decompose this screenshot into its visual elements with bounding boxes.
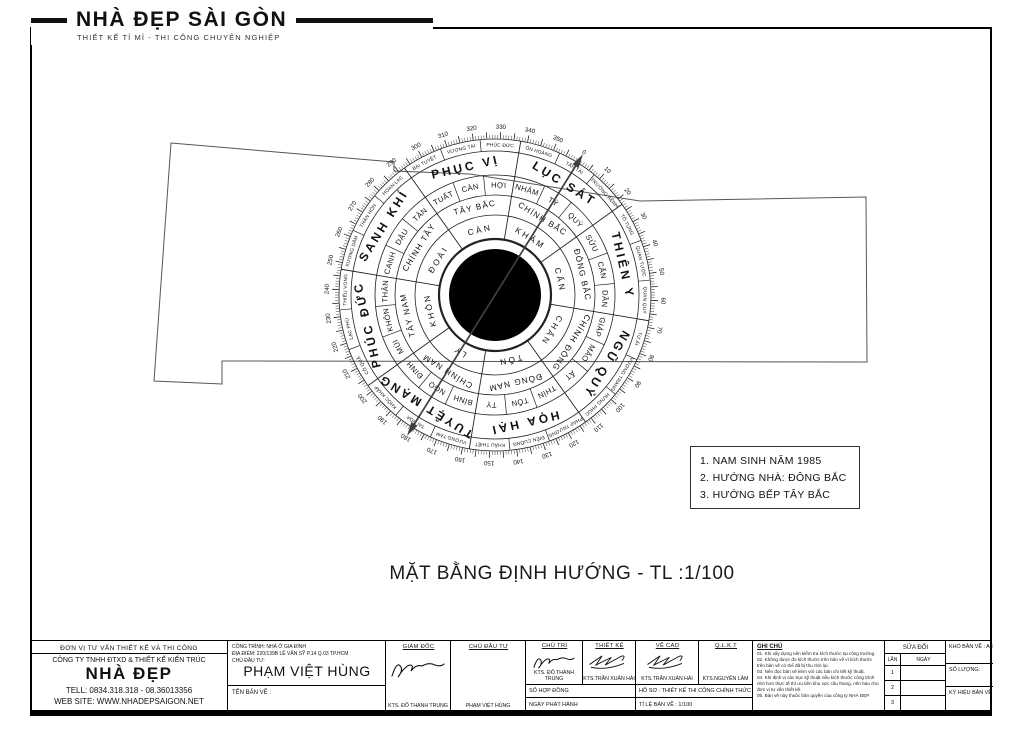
company-website: WEB SITE: WWW.NHADEPSAIGON.NET [31,697,227,706]
sign-name: KTS.TRẦN XUÂN HẢI [583,676,635,682]
sign-name: KTS. ĐỖ THÀNH TRUNG [386,703,450,709]
note-line: 2. HƯỚNG NHÀ: ĐÔNG BẮC [700,470,859,487]
sign-role: CHỦ ĐẦU TƯ [469,644,508,650]
signature-image [389,656,447,682]
revision-col-lan: LẦN [885,654,901,666]
revision-cell: SỬA ĐỔI LẦN NGÀY 1 2 3 [884,641,945,711]
scale-cell: TỈ LỆ BẢN VẼ : 1/100 [635,697,752,711]
note: 05. Bản vẽ này thuộc bản quyền của công … [757,693,880,699]
dossier-cell: HỒ SƠ : THIẾT KẾ THI CÔNG CHÍNH THỨC [635,684,752,697]
company-header: ĐƠN VỊ TƯ VẤN THIẾT KẾ VÀ THI CÔNG [31,641,227,654]
contract-number-cell: SỐ HỢP ĐỒNG [525,684,635,697]
company-line1: CÔNG TY TNHH ĐTXD & THIẾT KẾ KIẾN TRÚC [31,657,227,664]
sign-cell-thiet-ke: THIẾT KẾ KTS.TRẦN XUÂN HẢI [582,641,635,684]
drawing-sheet: KHẢMCẤNCHẤNTỐNLYKHÔNĐOÀICÀNCHÍNH BẮCĐÔNG… [0,0,1024,734]
sign-role: VẼ CAD [656,643,679,649]
copies: SỐ LƯỢNG: [946,664,993,687]
signature-image [642,652,692,672]
note-line: 1. NAM SINH NĂM 1985 [700,453,859,470]
drawing-title: MẶT BẰNG ĐỊNH HƯỚNG - TL :1/100 [262,563,862,585]
sign-name: KTS. ĐỖ THÀNH TRUNG [526,670,582,682]
note: 03. Nên đọc bản vẽ kèm với các bản chi t… [757,669,880,675]
logo-bar-right [296,18,433,23]
sign-cell-chu-dau-tu: CHỦ ĐẦU TƯ PHẠM VIỆT HÙNG [450,641,525,711]
sheet-info-cell: KHỔ BẢN VẼ : A3 SỐ LƯỢNG: KÝ HIỆU BẢN VẼ [945,641,992,711]
sign-role: CHỦ TRÌ [542,643,568,649]
titleblock-bottom-bar [31,710,992,716]
revision-number: 1 [885,666,901,681]
titleblock-company-cell: ĐƠN VỊ TƯ VẤN THIẾT KẾ VÀ THI CÔNG CÔNG … [31,641,227,711]
project-name: CÔNG TRÌNH: NHÀ Ở GIA ĐÌNH [232,644,384,650]
note: 02. Không được đo kích thước trên bản vẽ… [757,657,880,669]
revision-col-ngay: NGÀY [901,654,946,666]
company-tel: TELL: 0834.318.318 - 08.36013356 [31,686,227,695]
title-block: ĐƠN VỊ TƯ VẤN THIẾT KẾ VÀ THI CÔNG CÔNG … [31,640,992,710]
sign-role: Q.L.K.T [715,643,737,649]
paper-size: KHỔ BẢN VẼ : A3 [946,641,993,664]
sign-name: KTS.TRẦN XUÂN HẢI [636,676,698,682]
sheet-border [30,27,992,716]
logo-bar-left [31,18,67,23]
sign-cell-ve-cad: VẼ CAD KTS.TRẦN XUÂN HẢI [635,641,698,684]
titleblock-project-cell: CÔNG TRÌNH: NHÀ Ở GIA ĐÌNH ĐỊA ĐIỂM: 220… [227,641,385,711]
project-address: ĐỊA ĐIỂM: 220/139B LÊ VĂN SỸ P.14 Q.03 T… [232,651,384,657]
sign-role: THIẾT KẾ [595,643,623,649]
divider [228,685,386,686]
company-name: NHÀ ĐẸP [31,664,227,684]
issue-date-cell: NGÀY PHÁT HÀNH [525,697,635,711]
owner-name: PHẠM VIỆT HÙNG [228,663,386,679]
revision-number: 3 [885,696,901,711]
sheet-code: KÝ HIỆU BẢN VẼ [946,687,993,711]
notes-cell: GHI CHÚ 01. Khi xây dựng nên kiểm tra kí… [752,641,884,711]
company-logo: NHÀ ĐẸP SÀI GÒN THIẾT KẾ TỈ MỈ - THI CÔN… [31,6,433,45]
sign-name: PHẠM VIỆT HÙNG [451,703,525,709]
sign-cell-qlkt: Q.L.K.T KTS.NGUYỄN LÂM [698,641,752,684]
sign-role: GIÁM ĐỐC [403,644,435,650]
revision-number: 2 [885,681,901,696]
revision-row: 3 [885,696,946,711]
sign-cell-giam-doc: GIÁM ĐỐC KTS. ĐỖ THÀNH TRUNG [385,641,450,711]
signature-image [586,652,632,672]
signature-image [529,652,579,672]
revision-title: SỬA ĐỔI [885,641,946,654]
sign-name: KTS.NGUYỄN LÂM [699,676,752,682]
logo-tagline: THIẾT KẾ TỈ MỈ - THI CÔNG CHUYÊN NGHIỆP [77,33,433,42]
revision-row: 2 [885,681,946,696]
sheet-name-label: TÊN BẢN VẼ : [232,690,382,696]
feng-shui-notes-box: 1. NAM SINH NĂM 1985 2. HƯỚNG NHÀ: ĐÔNG … [690,446,860,509]
sign-cell-chu-tri: CHỦ TRÌ KTS. ĐỖ THÀNH TRUNG [525,641,582,684]
note-line: 3. HƯỚNG BẾP TÂY BẮC [700,487,859,504]
revision-row: 1 [885,666,946,681]
logo-title: NHÀ ĐẸP SÀI GÒN [76,8,287,32]
notes-title: GHI CHÚ [757,644,880,650]
note: 04. Khi định vị các trục kỹ thuật nếu kí… [757,675,880,693]
